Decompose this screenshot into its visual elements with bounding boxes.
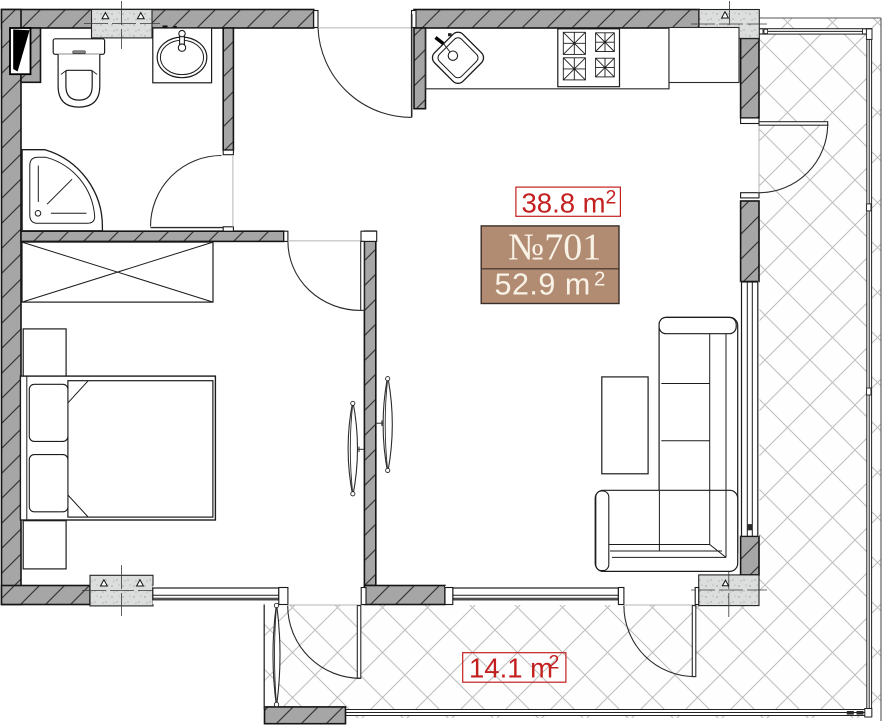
svg-text:14.1 m: 14.1 m (469, 653, 553, 684)
svg-text:2: 2 (606, 187, 617, 209)
svg-text:52.9 m: 52.9 m (495, 268, 591, 302)
svg-text:2: 2 (549, 652, 560, 674)
svg-text:№701: №701 (508, 227, 601, 269)
svg-text:38.8 m: 38.8 m (522, 188, 606, 219)
svg-text:2: 2 (594, 268, 605, 291)
